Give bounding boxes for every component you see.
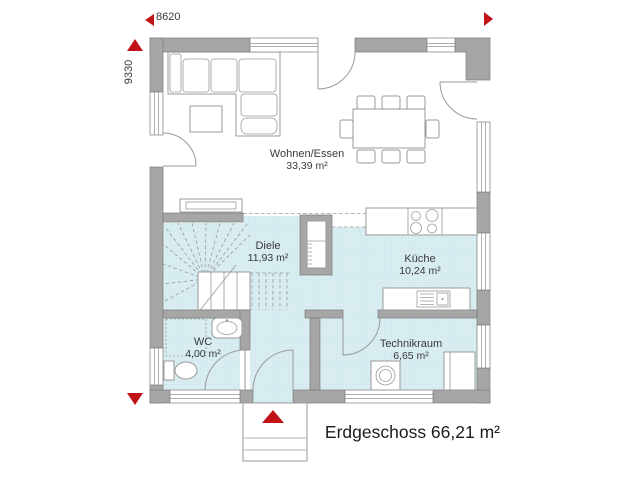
arrow-down-icon: [127, 393, 143, 405]
room-label-diele: Diele 11,93 m²: [218, 241, 318, 264]
sofa: [168, 52, 280, 136]
window: [477, 122, 490, 192]
room-label-kueche: Küche 10,24 m²: [370, 254, 470, 277]
room-name: Wohnen/Essen: [237, 149, 377, 161]
kitchen-counter: [366, 208, 477, 235]
washbasin: [212, 318, 242, 338]
room-name: Küche: [370, 254, 470, 266]
washing-machine: [371, 361, 400, 390]
window: [250, 38, 318, 52]
toilet: [164, 361, 197, 380]
room-area: 6,65 m²: [351, 351, 471, 363]
dining-table: [353, 109, 425, 148]
arrow-left-icon: [145, 14, 154, 26]
side-door-left: [163, 133, 196, 166]
terrace-door-top: [318, 52, 355, 89]
terrace-door-right: [440, 82, 477, 119]
floor-plan: 8620 9330 Wohnen/Essen 33,39 m² Diele 11…: [0, 0, 640, 480]
dimension-width-label: 8620: [156, 11, 180, 23]
room-label-wc: WC 4,00 m²: [153, 337, 253, 360]
arrow-right-icon: [484, 12, 493, 26]
room-label-technikraum: Technikraum 6,65 m²: [351, 339, 471, 362]
room-name: Diele: [218, 241, 318, 253]
kitchen-sink-counter: [383, 288, 470, 310]
coffee-table: [190, 106, 222, 132]
window: [150, 92, 163, 135]
floor-plan-svg: [0, 0, 640, 480]
room-area: 33,39 m²: [237, 161, 377, 173]
window: [477, 325, 490, 368]
dimension-height-label: 9330: [123, 50, 139, 94]
room-area: 10,24 m²: [370, 266, 470, 278]
window: [170, 390, 240, 403]
window: [427, 38, 455, 52]
floor-area-summary: Erdgeschoss 66,21 m²: [297, 422, 500, 443]
room-area: 4,00 m²: [153, 349, 253, 361]
window: [477, 233, 490, 290]
room-area: 11,93 m²: [218, 253, 318, 265]
room-name: Technikraum: [351, 339, 471, 351]
room-name: WC: [153, 337, 253, 349]
sideboard: [180, 199, 242, 212]
window: [345, 390, 433, 403]
room-label-wohnen-essen: Wohnen/Essen 33,39 m²: [237, 149, 377, 172]
